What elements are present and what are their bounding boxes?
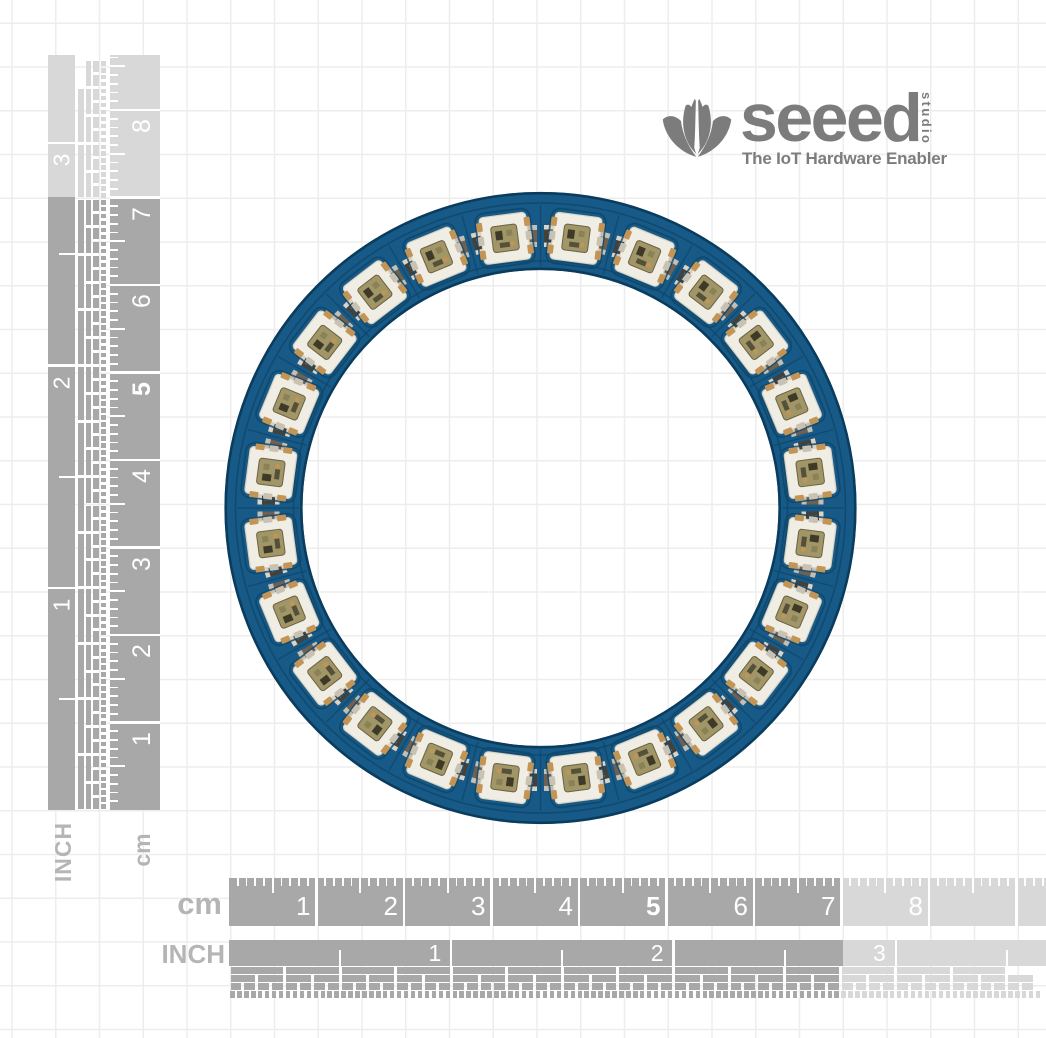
- inch-fraction-dash: [101, 415, 107, 419]
- inch-fraction-dash: [369, 991, 373, 998]
- led-pad: [255, 566, 265, 573]
- inch-fraction-dash: [93, 256, 99, 267]
- led-pad: [476, 784, 483, 794]
- inch-fraction-dash: [93, 284, 99, 295]
- mm-tick: [771, 878, 773, 886]
- mm-tick: [1042, 878, 1044, 886]
- inch-fraction-dash: [101, 478, 107, 482]
- inch-fraction-dash: [101, 596, 107, 600]
- inch-fraction-dash: [376, 991, 380, 998]
- half-inch-tick: [59, 476, 75, 478]
- led-chip: [506, 229, 513, 236]
- seeed-lotus-icon: [657, 96, 737, 166]
- inch-fraction-dash: [730, 991, 734, 998]
- cm-line: [928, 878, 930, 926]
- mm-tick: [569, 878, 571, 886]
- inch-fraction-dash: [536, 975, 561, 982]
- mm-tick: [110, 660, 118, 662]
- inch-fraction-dash: [101, 68, 107, 72]
- inch-fraction-dash: [86, 61, 92, 86]
- inch-fraction-dash: [101, 290, 107, 294]
- half-inch-tick: [561, 950, 563, 966]
- seeed-lotus-icon: [657, 96, 737, 166]
- mm-tick: [823, 878, 825, 886]
- inch-fraction-dash: [101, 346, 107, 350]
- mm-tick: [110, 214, 118, 216]
- mm-tick: [351, 878, 353, 886]
- inch-fraction-dash: [101, 339, 107, 343]
- halfcm-tick: [272, 878, 274, 893]
- mm-tick: [981, 878, 983, 886]
- inch-fraction-dash: [897, 983, 908, 990]
- inch-fraction-dash: [967, 983, 978, 990]
- halfcm-tick: [110, 678, 125, 680]
- led-chip: [809, 534, 819, 542]
- inch-fraction-dash: [93, 700, 99, 711]
- mm-tick: [281, 878, 283, 886]
- inch-fraction-dash: [101, 381, 107, 385]
- inch-fraction-dash: [93, 673, 99, 684]
- mm-tick: [377, 878, 379, 886]
- inch-fraction-dash: [814, 975, 839, 982]
- logo-studio-text: studio: [919, 92, 934, 145]
- inch-fraction-dash: [362, 991, 366, 998]
- mm-tick: [368, 878, 370, 886]
- mm-tick: [701, 878, 703, 886]
- bottom-inch-fraction-ticks: [229, 967, 1046, 999]
- inch-fraction-dash: [101, 700, 107, 704]
- mm-tick: [692, 878, 694, 886]
- inch-fraction-dash: [258, 975, 283, 982]
- inch-fraction-dash: [78, 311, 84, 364]
- led-pad: [478, 237, 485, 247]
- inch-fraction-dash: [300, 983, 311, 990]
- led-emitter-area: [561, 224, 590, 253]
- inch-fraction-dash: [731, 975, 756, 982]
- led-chip: [808, 463, 818, 471]
- inch-fraction-dash: [1036, 991, 1040, 998]
- inch-fraction-dash: [93, 367, 99, 378]
- inch-fraction-dash: [101, 770, 107, 774]
- inch-fraction-dash: [564, 967, 617, 974]
- inch-fraction-dash: [1015, 991, 1019, 998]
- inch-fraction-dash: [78, 367, 84, 420]
- mm-tick: [110, 687, 118, 689]
- inch-fraction-dash: [93, 617, 99, 628]
- inch-fraction-dash: [508, 983, 519, 990]
- cm-number: 6: [130, 288, 154, 314]
- mm-tick: [499, 878, 501, 886]
- inch-fraction-dash: [946, 991, 950, 998]
- inch-fraction-dash: [793, 991, 797, 998]
- inch-fraction-dash: [675, 983, 686, 990]
- halfcm-tick: [110, 153, 125, 155]
- led-pad: [822, 491, 832, 498]
- mm-tick: [832, 878, 834, 886]
- mm-tick: [110, 424, 118, 426]
- led-pad: [596, 770, 603, 780]
- inch-fraction-dash: [78, 700, 84, 753]
- halfcm-tick: [110, 503, 125, 505]
- inch-line: [672, 940, 674, 966]
- inch-fraction-dash: [101, 145, 107, 149]
- inch-fraction-dash: [101, 610, 107, 614]
- cm-line: [110, 371, 160, 373]
- inch-fraction-dash: [230, 991, 234, 998]
- led-pad: [523, 790, 530, 800]
- led-emitter-area: [490, 763, 519, 792]
- led-pad: [550, 790, 557, 800]
- inch-fraction-dash: [93, 645, 99, 656]
- led-pad: [263, 493, 273, 500]
- inch-fraction-dash: [411, 991, 415, 998]
- mm-tick: [631, 878, 633, 886]
- led-emitter-area: [256, 529, 285, 558]
- led-emitter-area: [490, 224, 519, 253]
- inch-fraction-dash: [101, 388, 107, 392]
- led-pad: [479, 756, 486, 766]
- half-inch-tick: [339, 950, 341, 966]
- inch-fraction-dash: [522, 991, 526, 998]
- led-pad: [283, 447, 293, 454]
- inch-fraction-dash: [101, 533, 107, 537]
- inch-fraction-dash: [994, 991, 998, 998]
- inch-fraction-dash: [101, 735, 107, 739]
- mm-tick: [421, 878, 423, 886]
- mm-tick: [333, 878, 335, 886]
- inch-fraction-dash: [960, 991, 964, 998]
- cm-line: [840, 878, 842, 926]
- cm-number: 3: [130, 551, 154, 577]
- inch-fraction-dash: [369, 975, 394, 982]
- inch-fraction-dash: [786, 983, 797, 990]
- inch-fraction-dash: [953, 991, 957, 998]
- inch-fraction-dash: [480, 991, 484, 998]
- inch-fraction-dash: [93, 742, 99, 753]
- inch-fraction-dash: [515, 991, 519, 998]
- inch-fraction-dash: [543, 991, 547, 998]
- inch-fraction-dash: [911, 983, 922, 990]
- inch-fraction-dash: [786, 991, 790, 998]
- inch-fraction-dash: [101, 263, 107, 267]
- inch-fraction-dash: [101, 401, 107, 405]
- led-chip: [495, 231, 503, 241]
- mm-tick: [744, 878, 746, 886]
- inch-fraction-dash: [758, 983, 769, 990]
- inch-fraction-dash: [550, 983, 561, 990]
- inch-fraction-dash: [814, 983, 825, 990]
- mm-tick: [779, 878, 781, 886]
- led-chip: [506, 777, 514, 787]
- inch-fraction-dash: [101, 96, 107, 100]
- cm-number: 4: [548, 891, 573, 921]
- mm-tick: [110, 135, 118, 137]
- inch-fraction-dash: [86, 311, 92, 336]
- inch-fraction-dash: [321, 991, 325, 998]
- inch-fraction-dash: [772, 991, 776, 998]
- inch-fraction-dash: [675, 975, 700, 982]
- inch-fraction-dash: [86, 117, 92, 142]
- mm-tick: [110, 179, 118, 181]
- inch-fraction-dash: [93, 784, 99, 795]
- mm-tick: [902, 878, 904, 886]
- bottom-cm-ruler-label: cm: [120, 886, 222, 922]
- inch-fraction-dash: [911, 991, 915, 998]
- left-inch-fraction-ticks: [78, 55, 106, 810]
- inch-fraction-dash: [101, 624, 107, 628]
- led-pad: [547, 244, 554, 254]
- inch-fraction-dash: [876, 991, 880, 998]
- inch-fraction-dash: [86, 423, 92, 448]
- inch-fraction-dash: [101, 249, 107, 253]
- mm-tick: [867, 878, 869, 886]
- cm-line: [110, 546, 160, 548]
- inch-fraction-dash: [101, 200, 107, 204]
- inch-fraction-dash: [101, 429, 107, 433]
- led-pad: [788, 447, 798, 454]
- cm-number: 1: [130, 726, 154, 752]
- mm-tick: [954, 878, 956, 886]
- led-pad: [549, 776, 556, 786]
- inch-fraction-dash: [869, 975, 894, 982]
- inch-fraction-dash: [78, 478, 84, 531]
- mm-tick: [110, 529, 118, 531]
- inch-fraction-dash: [828, 991, 832, 998]
- mm-tick: [110, 477, 118, 479]
- inch-fraction-dash: [86, 89, 92, 114]
- mm-tick: [110, 319, 118, 321]
- inch-fraction-dash: [86, 478, 92, 503]
- inch-fraction-dash: [508, 975, 533, 982]
- mm-tick: [110, 485, 118, 487]
- inch-fraction-dash: [93, 520, 99, 531]
- mm-tick: [110, 188, 118, 190]
- inch-fraction-dash: [86, 367, 92, 392]
- inch-fraction-dash: [591, 991, 595, 998]
- inch-fraction-dash: [564, 983, 575, 990]
- inch-fraction-dash: [86, 784, 92, 809]
- led-chip: [263, 545, 273, 553]
- inch-fraction-dash: [897, 991, 901, 998]
- halfcm-tick: [709, 878, 711, 893]
- led-pad: [808, 493, 818, 500]
- mm-tick: [110, 739, 118, 741]
- led-pad: [822, 518, 832, 525]
- inch-fraction-dash: [342, 967, 395, 974]
- inch-fraction-dash: [101, 547, 107, 551]
- inch-fraction-dash: [101, 721, 107, 725]
- inch-fraction-dash: [93, 506, 99, 517]
- inch-fraction-dash: [487, 991, 491, 998]
- inch-fraction-dash: [856, 983, 867, 990]
- cm-line: [578, 878, 580, 926]
- inch-fraction-dash: [93, 339, 99, 350]
- inch-fraction-dash: [101, 749, 107, 753]
- inch-line: [895, 940, 897, 966]
- inch-fraction-dash: [647, 983, 658, 990]
- inch-fraction-dash: [328, 983, 339, 990]
- inch-fraction-dash: [772, 983, 783, 990]
- led-pad: [249, 491, 259, 498]
- led-chip: [578, 776, 586, 786]
- led-pad: [277, 495, 287, 502]
- inch-fraction-dash: [925, 983, 936, 990]
- inch-fraction-dash: [265, 991, 269, 998]
- inch-fraction-dash: [571, 991, 575, 998]
- mm-tick: [110, 57, 118, 59]
- inch-fraction-dash: [86, 395, 92, 420]
- inch-fraction-dash: [619, 991, 623, 998]
- half-inch-tick: [59, 698, 75, 700]
- led-chip: [262, 473, 272, 481]
- mm-tick: [517, 878, 519, 886]
- inch-fraction-dash: [501, 991, 505, 998]
- inch-fraction-dash: [101, 763, 107, 767]
- inch-fraction-dash: [550, 991, 554, 998]
- inch-fraction-dash: [314, 991, 318, 998]
- halfcm-tick: [110, 240, 125, 242]
- mm-tick: [110, 118, 118, 120]
- inch-fraction-dash: [93, 61, 99, 72]
- inch-fraction-dash: [101, 665, 107, 669]
- inch-fraction-dash: [101, 318, 107, 322]
- mm-tick: [110, 599, 118, 601]
- inch-fraction-dash: [508, 991, 512, 998]
- inch-fraction-dash: [751, 991, 755, 998]
- inch-fraction-dash: [286, 991, 290, 998]
- mm-tick: [526, 878, 528, 886]
- inch-fraction-dash: [86, 534, 92, 559]
- inch-fraction-dash: [404, 991, 408, 998]
- inch-fraction-dash: [640, 991, 644, 998]
- inch-fraction-dash: [78, 200, 84, 253]
- mm-tick: [639, 878, 641, 886]
- inch-fraction-dash: [93, 103, 99, 114]
- mm-tick: [464, 878, 466, 886]
- mm-tick: [1024, 878, 1026, 886]
- inch-fraction-dash: [101, 638, 107, 642]
- led-pad: [795, 495, 805, 502]
- inch-fraction-dash: [578, 983, 589, 990]
- inch-fraction-dash: [814, 991, 818, 998]
- mm-tick: [110, 704, 118, 706]
- inch-fraction-dash: [1008, 991, 1012, 998]
- inch-fraction-dash: [286, 967, 339, 974]
- mm-tick: [110, 617, 118, 619]
- inch-fraction-dash: [86, 173, 92, 198]
- led-pad: [479, 250, 486, 260]
- inch-fraction-dash: [101, 520, 107, 524]
- mm-tick: [543, 878, 545, 886]
- inch-fraction-dash: [93, 242, 99, 253]
- inch-fraction-dash: [93, 492, 99, 503]
- inch-fraction-dash: [397, 983, 408, 990]
- inch-fraction-dash: [605, 991, 609, 998]
- inch-fraction-dash: [101, 235, 107, 239]
- inch-fraction-dash: [93, 395, 99, 406]
- inch-fraction-dash: [862, 991, 866, 998]
- inch-fraction-dash: [821, 991, 825, 998]
- bottom-inch-ruler: 123: [229, 940, 1046, 966]
- inch-number: 3: [858, 941, 886, 965]
- inch-fraction-dash: [101, 804, 107, 808]
- cm-number: 7: [130, 201, 154, 227]
- led-pad: [527, 244, 534, 254]
- mm-tick: [604, 878, 606, 886]
- inch-fraction-dash: [101, 492, 107, 496]
- inch-fraction-dash: [86, 145, 92, 170]
- half-inch-tick: [1006, 950, 1008, 966]
- inch-fraction-dash: [86, 450, 92, 475]
- led-pad: [594, 756, 601, 766]
- inch-fraction-dash: [93, 409, 99, 420]
- led-chip: [578, 231, 585, 238]
- led-chip: [568, 780, 575, 787]
- mm-tick: [849, 878, 851, 886]
- led-pad: [795, 514, 805, 521]
- mm-tick: [246, 878, 248, 886]
- inch-fraction-dash: [612, 991, 616, 998]
- mm-tick: [718, 878, 720, 886]
- inch-fraction-dash: [101, 214, 107, 218]
- led-pad: [547, 762, 554, 772]
- inch-fraction-dash: [93, 728, 99, 739]
- inch-fraction-dash: [786, 967, 839, 974]
- inch-fraction-dash: [101, 256, 107, 260]
- bottom-cm-ruler: 12345678: [229, 878, 1046, 926]
- inch-fraction-dash: [101, 138, 107, 142]
- inch-fraction-dash: [334, 991, 338, 998]
- mm-tick: [110, 643, 118, 645]
- inch-fraction-dash: [101, 693, 107, 697]
- mm-tick: [110, 512, 118, 514]
- led-pad: [255, 443, 265, 450]
- inch-fraction-dash: [786, 975, 811, 982]
- mm-tick: [110, 730, 118, 732]
- mm-tick: [110, 669, 118, 671]
- mm-tick: [429, 878, 431, 886]
- inch-fraction-dash: [101, 485, 107, 489]
- inch-fraction-dash: [647, 975, 672, 982]
- half-inch-tick: [59, 253, 75, 255]
- inch-fraction-dash: [731, 983, 742, 990]
- inch-fraction-dash: [883, 983, 894, 990]
- inch-fraction-dash: [668, 991, 672, 998]
- inch-fraction-dash: [101, 797, 107, 801]
- inch-fraction-dash: [101, 117, 107, 121]
- inch-fraction-dash: [101, 617, 107, 621]
- inch-fraction-dash: [369, 983, 380, 990]
- inch-fraction-dash: [93, 353, 99, 364]
- led-pad: [269, 564, 279, 571]
- inch-fraction-dash: [93, 311, 99, 322]
- mm-tick: [110, 223, 118, 225]
- inch-fraction-dash: [101, 75, 107, 79]
- inch-fraction-dash: [101, 276, 107, 280]
- mm-tick: [919, 878, 921, 886]
- inch-fraction-dash: [953, 975, 978, 982]
- inch-fraction-dash: [842, 967, 895, 974]
- led-pad: [788, 562, 798, 569]
- inch-fraction-dash: [897, 967, 950, 974]
- cm-number: 7: [811, 891, 836, 921]
- inch-fraction-dash: [93, 186, 99, 197]
- inch-fraction-dash: [78, 756, 84, 809]
- inch-fraction-dash: [557, 991, 561, 998]
- inch-fraction-dash: [101, 124, 107, 128]
- mm-tick: [596, 878, 598, 886]
- inch-fraction-dash: [314, 983, 325, 990]
